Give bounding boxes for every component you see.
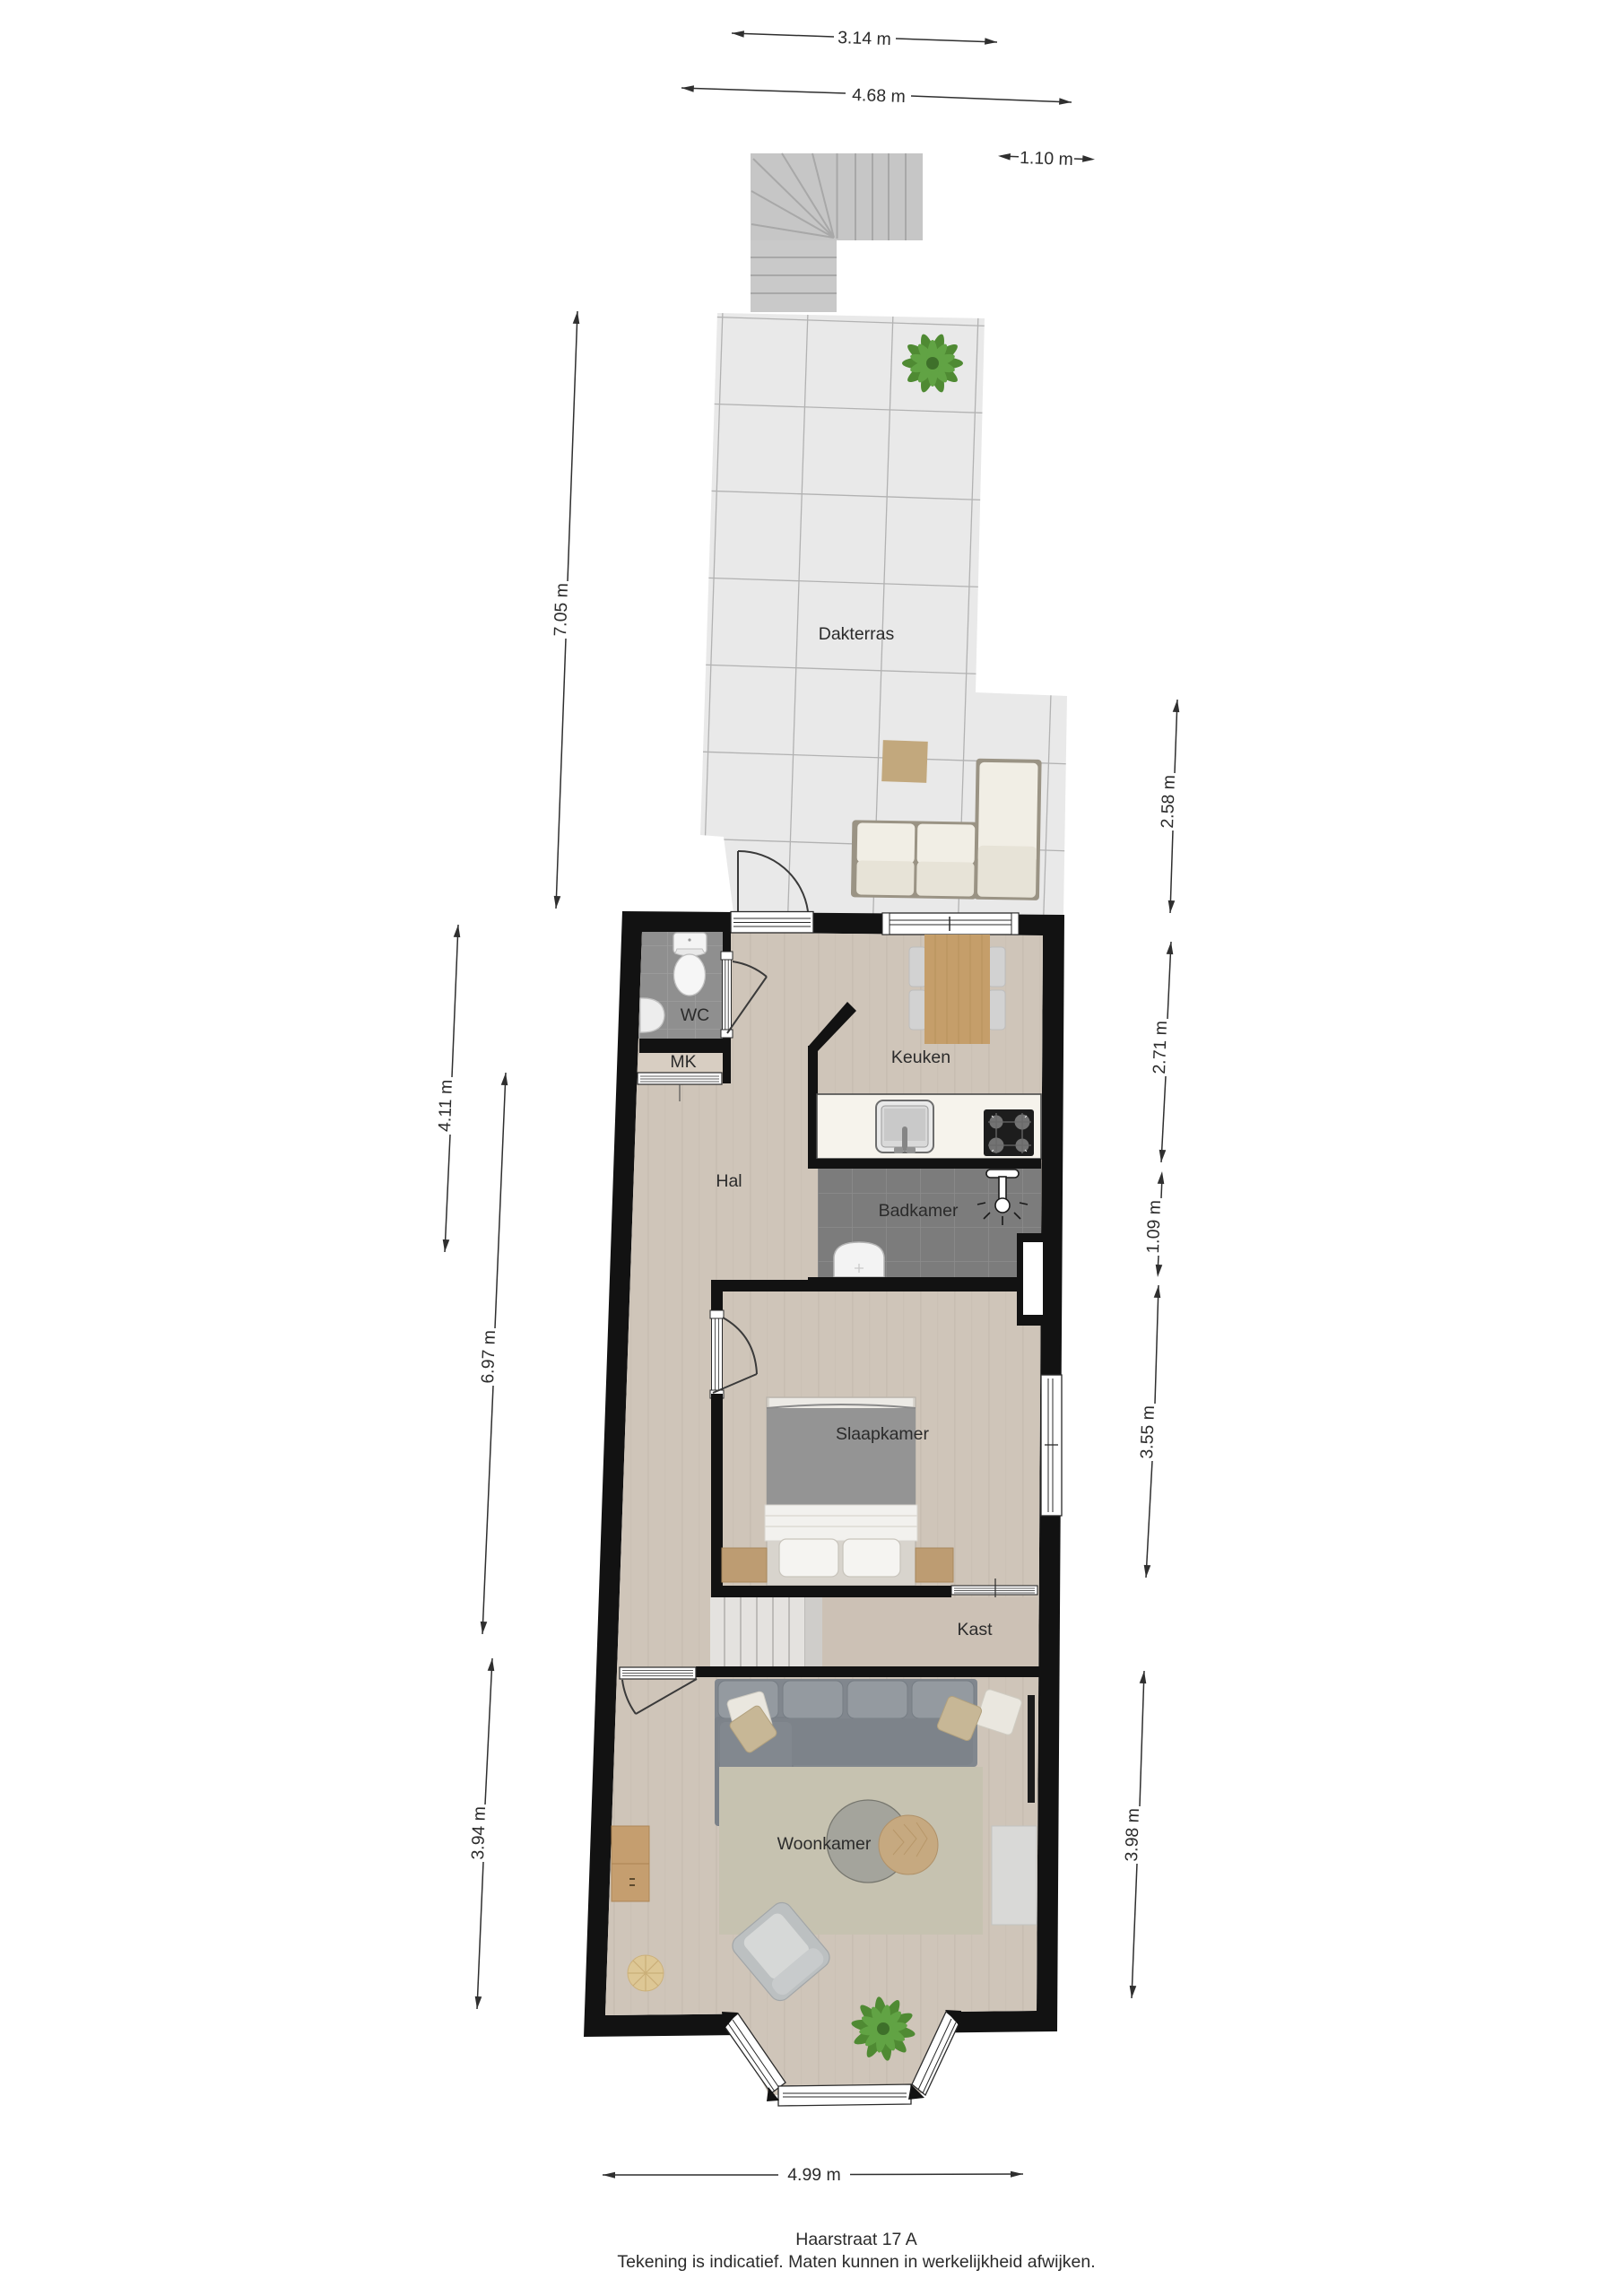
svg-text:MK: MK [670, 1052, 696, 1072]
svg-text:2.71 m: 2.71 m [1150, 1021, 1171, 1074]
svg-text:Tekening is indicatief. Maten: Tekening is indicatief. Maten kunnen in … [617, 2252, 1095, 2272]
svg-text:Hal: Hal [716, 1171, 742, 1191]
svg-text:3.94 m: 3.94 m [468, 1806, 490, 1860]
svg-text:4.68 m: 4.68 m [852, 85, 906, 107]
svg-text:2.58 m: 2.58 m [1158, 775, 1179, 829]
svg-text:4.99 m: 4.99 m [787, 2165, 841, 2185]
svg-text:Dakterras: Dakterras [819, 624, 895, 644]
svg-text:3.55 m: 3.55 m [1137, 1405, 1159, 1459]
svg-text:Woonkamer: Woonkamer [777, 1834, 872, 1854]
svg-text:Badkamer: Badkamer [879, 1201, 959, 1221]
svg-text:4.11 m: 4.11 m [435, 1079, 456, 1132]
svg-text:Haarstraat 17 A: Haarstraat 17 A [795, 2230, 917, 2249]
svg-text:WC: WC [681, 1005, 710, 1025]
svg-text:Kast: Kast [957, 1620, 993, 1639]
svg-text:Slaapkamer: Slaapkamer [836, 1424, 930, 1444]
svg-text:6.97 m: 6.97 m [478, 1330, 499, 1384]
svg-text:1.09 m: 1.09 m [1143, 1200, 1165, 1254]
svg-text:3.98 m: 3.98 m [1122, 1808, 1143, 1862]
svg-text:1.10 m: 1.10 m [1020, 148, 1073, 170]
svg-text:Keuken: Keuken [891, 1048, 950, 1067]
svg-text:3.14 m: 3.14 m [838, 28, 891, 49]
svg-text:7.05 m: 7.05 m [551, 583, 572, 637]
